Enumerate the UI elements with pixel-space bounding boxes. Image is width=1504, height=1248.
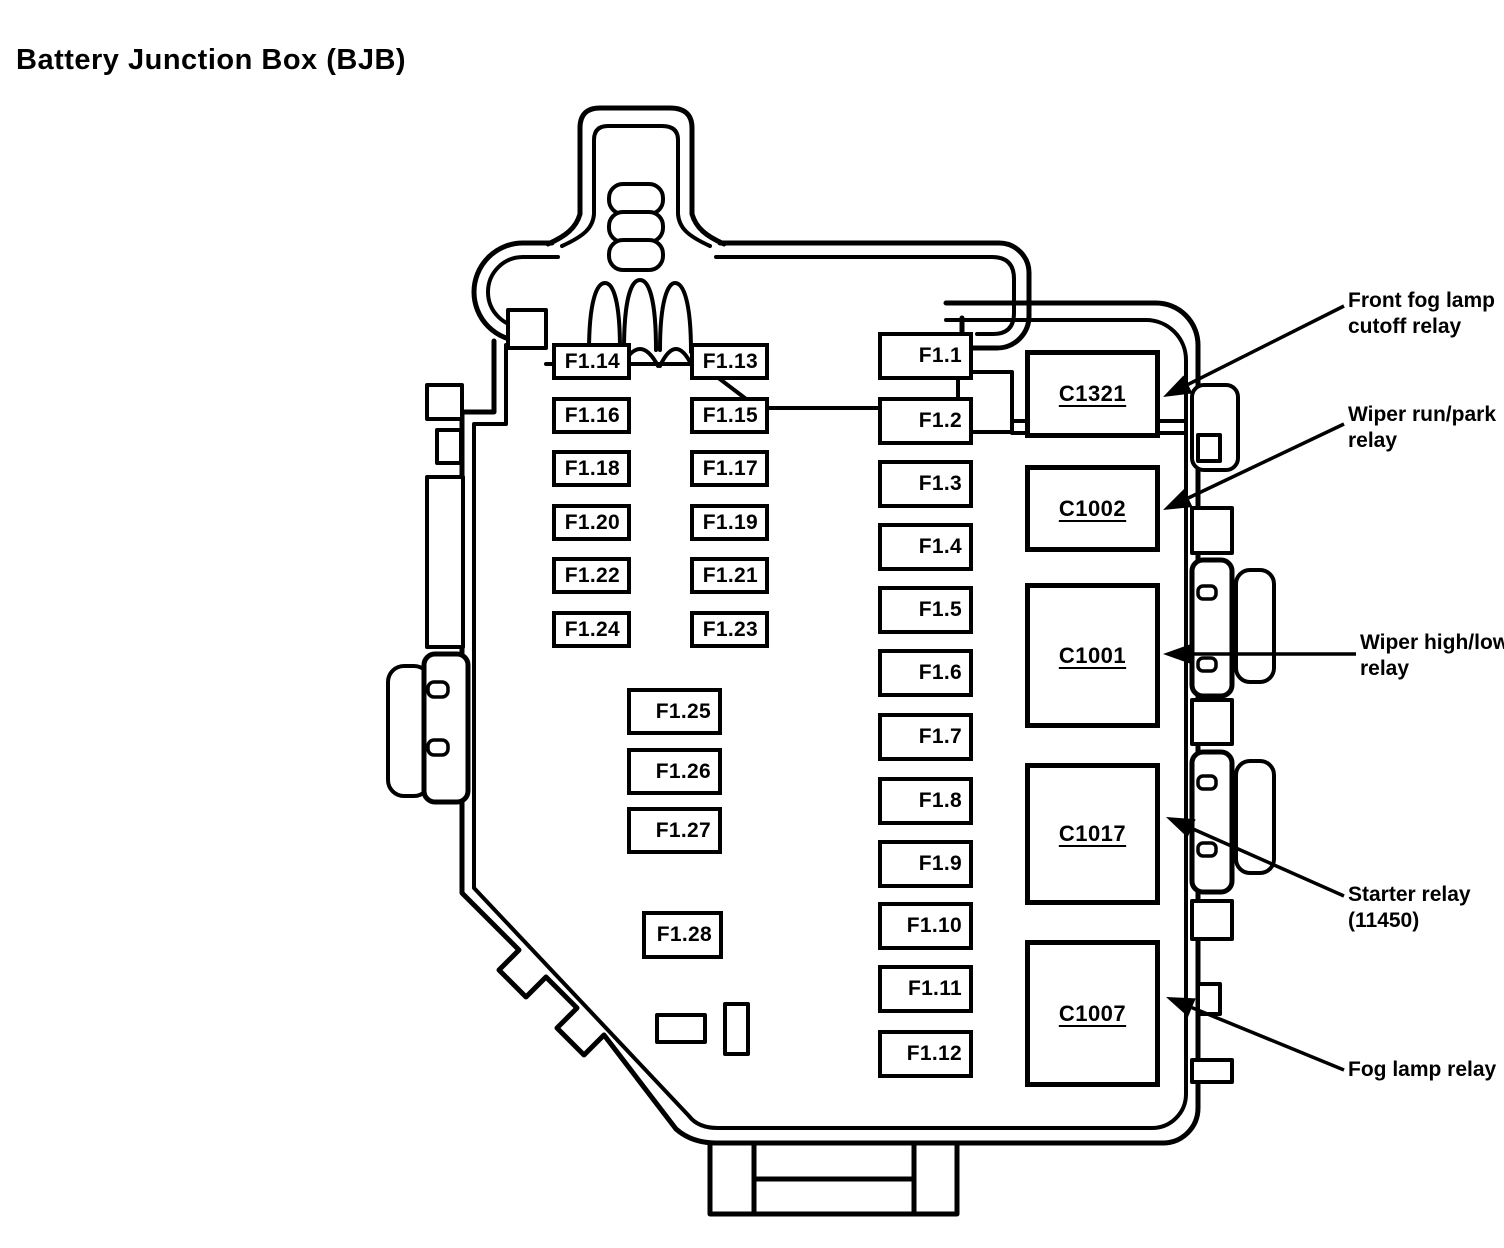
fuse-box-f1-13: F1.13	[690, 343, 769, 380]
fuse-box-f1-10: F1.10	[878, 902, 973, 950]
latch-bellows	[609, 184, 663, 270]
callout-arrowhead	[1163, 489, 1193, 510]
callout-c1001-label: Wiper high/low relay	[1360, 630, 1504, 682]
relay-box-c1002: C1002	[1025, 465, 1160, 552]
fuse-box-f1-14: F1.14	[552, 343, 631, 380]
callout-leader-line	[1188, 306, 1344, 384]
fuse-box-f1-23: F1.23	[690, 611, 769, 648]
fuse-box-f1-11: F1.11	[878, 965, 973, 1013]
fuse-box-f1-15: F1.15	[690, 397, 769, 434]
fuse-box-f1-25: F1.25	[627, 688, 722, 735]
cover-rim-inner	[488, 257, 1014, 334]
fuse-box-f1-22: F1.22	[552, 557, 631, 594]
fuse-box-f1-5: F1.5	[878, 586, 973, 634]
callout-c1321-label: Front fog lamp cutoff relay	[1348, 288, 1504, 340]
relay-label: C1001	[1059, 643, 1126, 669]
battery-junction-box-diagram: Battery Junction Box (BJB)	[0, 0, 1504, 1248]
small-component-horizontal	[657, 1015, 705, 1042]
fuse-box-f1-1: F1.1	[878, 332, 973, 380]
relay-box-c1001: C1001	[1025, 583, 1160, 728]
fuse-box-f1-8: F1.8	[878, 777, 973, 825]
fuse-box-f1-24: F1.24	[552, 611, 631, 648]
fuse-box-f1-17: F1.17	[690, 450, 769, 487]
relay-label: C1321	[1059, 381, 1126, 407]
fuse-box-f1-16: F1.16	[552, 397, 631, 434]
callout-c1007-label: Fog lamp relay	[1348, 1057, 1504, 1083]
fuse-box-f1-3: F1.3	[878, 460, 973, 508]
bottom-connector	[710, 1143, 957, 1214]
fuse-box-f1-18: F1.18	[552, 450, 631, 487]
callout-arrowhead	[1166, 997, 1196, 1017]
fuse-box-f1-12: F1.12	[878, 1030, 973, 1078]
right-mount-bracket-upper	[1192, 560, 1274, 696]
relay-box-c1007: C1007	[1025, 940, 1160, 1087]
left-edge-tabs	[427, 385, 463, 647]
relay-label: C1007	[1059, 1001, 1126, 1027]
relay-label: C1017	[1059, 821, 1126, 847]
fuse-box-f1-20: F1.20	[552, 504, 631, 541]
rim-left-tab	[508, 310, 546, 348]
right-mount-bracket-lower	[1192, 752, 1274, 892]
fuse-box-f1-28: F1.28	[642, 911, 723, 959]
fuse-box-f1-7: F1.7	[878, 713, 973, 761]
callout-arrowhead	[1163, 375, 1193, 397]
fuse-box-f1-19: F1.19	[690, 504, 769, 541]
fuse-box-f1-27: F1.27	[627, 807, 722, 854]
relay-box-c1017: C1017	[1025, 763, 1160, 905]
fuse-box-f1-21: F1.21	[690, 557, 769, 594]
callout-c1017-label: Starter relay (11450)	[1348, 882, 1504, 934]
fuse-box-f1-4: F1.4	[878, 523, 973, 571]
fuse-box-f1-9: F1.9	[878, 840, 973, 888]
callout-arrowhead	[1163, 644, 1191, 664]
small-component-vertical	[725, 1004, 748, 1054]
fuse-box-f1-2: F1.2	[878, 397, 973, 445]
callout-c1002-label: Wiper run/park relay	[1348, 402, 1504, 454]
relay-label: C1002	[1059, 496, 1126, 522]
fuse-box-f1-26: F1.26	[627, 748, 722, 795]
fuse-box-f1-6: F1.6	[878, 649, 973, 697]
relay-box-c1321: C1321	[1025, 350, 1160, 438]
left-mount-bracket	[388, 654, 468, 802]
